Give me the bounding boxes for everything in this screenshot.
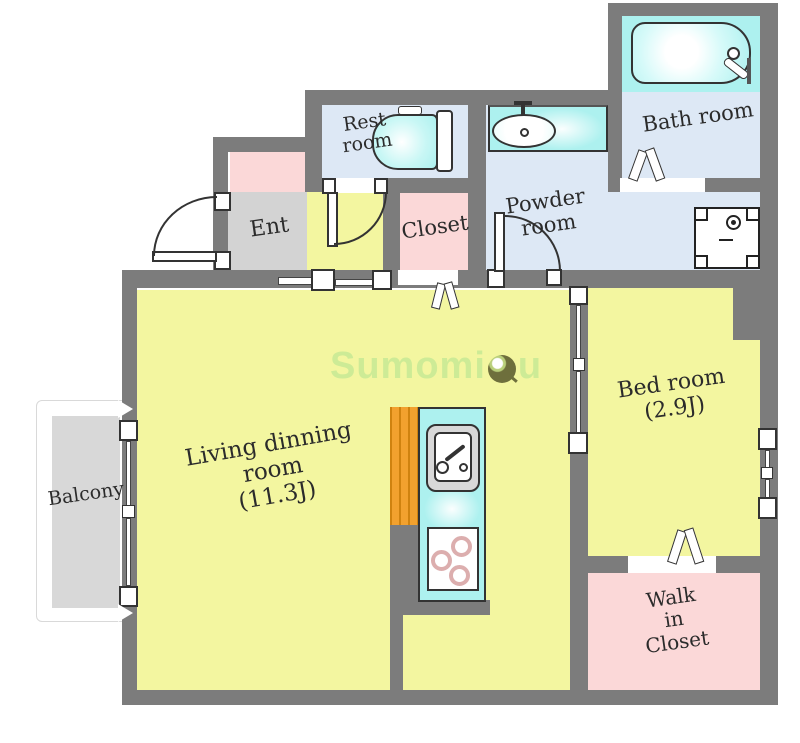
kitchen-glow — [424, 486, 480, 532]
washer-pan-tab-br — [746, 255, 760, 269]
toilet-tank-icon — [436, 110, 453, 172]
wall-top-upper — [305, 90, 622, 105]
wall-bedroom-bottom-left — [588, 556, 630, 573]
washer-pan-tab-tl — [694, 207, 708, 221]
hall-sliding-door-track-left — [278, 277, 312, 285]
wall-bedroom-notch — [733, 288, 760, 340]
bedroom-window-mid — [761, 467, 773, 479]
stove-burner-1 — [451, 536, 472, 557]
floor-plan: Rest room Powder room Bath room Closet E… — [0, 0, 800, 743]
bedroom-slider-top — [569, 286, 588, 305]
sink-faucet-handle — [514, 101, 532, 105]
bedroom-window-rail-2 — [765, 479, 770, 499]
bedroom-slider-rail-1 — [576, 305, 581, 360]
kitchen-drain — [459, 463, 468, 472]
washer-pan-tab-tr — [746, 207, 760, 221]
balcony-floor — [52, 416, 120, 608]
wall-kitchen-bar — [390, 600, 490, 615]
wall-bedroom-bottom-right — [716, 556, 760, 573]
wall-closet-top — [388, 178, 468, 193]
watermark: Sumomi u — [330, 345, 542, 388]
bedroom-slider-bottom — [568, 432, 588, 454]
bedroom-window-bottom — [758, 497, 777, 519]
bathtub-faucet-pipe — [747, 58, 751, 84]
washer-pan-dash — [719, 239, 733, 241]
watermark-text-left: Sumomi — [330, 345, 486, 388]
bedroom-slider-rail-2 — [576, 371, 581, 433]
washer-pan-tab-bl — [694, 255, 708, 269]
kitchen-faucet-icon — [436, 461, 449, 474]
watermark-text-right: u — [518, 345, 542, 388]
shoe-closet-floor — [230, 152, 307, 192]
balcony-break-arrow-top — [118, 400, 133, 418]
watermark-plum-logo-icon — [488, 355, 516, 383]
wall-bath-top — [608, 3, 778, 16]
hall-sliding-door-panel — [311, 269, 335, 291]
balcony-window-top — [119, 420, 138, 441]
stove-burner-3 — [449, 565, 470, 586]
wall-bottom — [122, 690, 778, 705]
wall-rest-left — [305, 90, 322, 192]
hall-sliding-door-stop — [372, 270, 392, 290]
washer-drain-dot — [731, 220, 736, 225]
hall-sliding-door-track-right — [335, 279, 373, 286]
balcony-window-rail-2 — [126, 518, 131, 586]
balcony-window-mid — [122, 505, 135, 518]
balcony-break-arrow-bottom — [118, 604, 133, 622]
sink-drain — [520, 128, 529, 137]
bedroom-slider-mid — [573, 358, 585, 371]
powder-door-stop — [546, 269, 562, 286]
bedroom-window-top — [758, 428, 777, 450]
wall-bath-left — [608, 3, 622, 192]
stove-burner-2 — [431, 550, 452, 571]
wall-kitchen-stub — [390, 523, 418, 603]
entrance-door-swing-arc — [153, 196, 217, 256]
wall-rest-powder-divider — [468, 90, 486, 272]
